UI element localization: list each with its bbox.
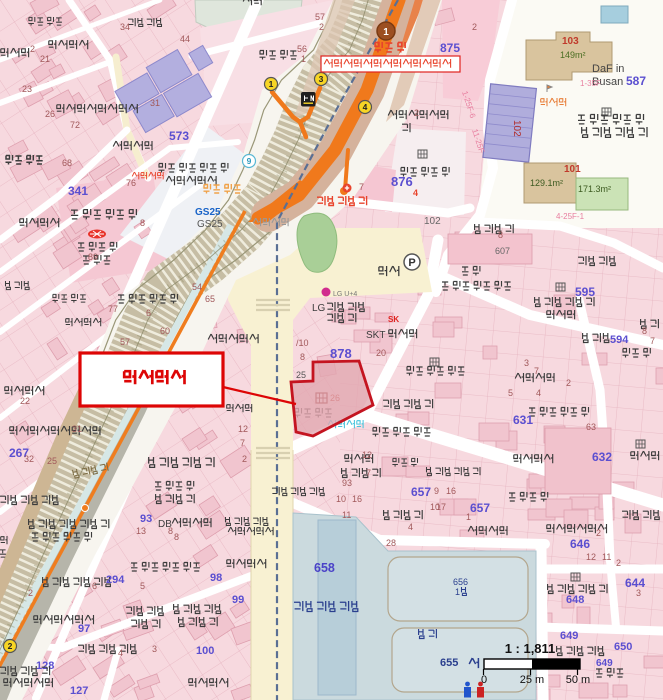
svg-text:657: 657 (470, 501, 490, 515)
svg-text:6: 6 (146, 308, 151, 318)
svg-text:7: 7 (650, 336, 655, 346)
svg-text:DaF in: DaF in (592, 63, 624, 75)
svg-text:77: 77 (108, 304, 118, 314)
svg-text:658: 658 (314, 561, 335, 575)
svg-text:72: 72 (70, 120, 80, 130)
svg-text:1: 1 (301, 54, 306, 64)
svg-text:8: 8 (174, 532, 179, 542)
svg-text:6: 6 (92, 581, 97, 591)
svg-text:3: 3 (319, 74, 324, 84)
svg-text:31: 31 (72, 424, 82, 434)
svg-text:4-25F-1: 4-25F-1 (556, 212, 585, 221)
svg-text:56: 56 (297, 44, 307, 54)
svg-text:171.3m²: 171.3m² (578, 184, 611, 194)
svg-text:4: 4 (413, 188, 418, 198)
svg-text:650: 650 (614, 641, 632, 653)
svg-text:GS25: GS25 (197, 219, 223, 230)
svg-text:656: 656 (453, 577, 468, 587)
svg-text:63: 63 (586, 422, 596, 432)
svg-text:65: 65 (205, 294, 215, 304)
svg-text:8: 8 (300, 352, 305, 362)
svg-text:2: 2 (596, 528, 601, 538)
svg-text:2: 2 (414, 108, 419, 118)
svg-text:26: 26 (45, 109, 55, 119)
svg-text:149m²: 149m² (560, 50, 586, 60)
svg-text:76: 76 (126, 178, 136, 188)
svg-text:5: 5 (508, 388, 513, 398)
svg-text:31: 31 (150, 98, 160, 108)
svg-text:127: 127 (70, 685, 88, 697)
svg-text:875: 875 (440, 41, 460, 55)
svg-text:GS25: GS25 (195, 207, 221, 218)
svg-text:128: 128 (36, 660, 54, 672)
svg-text:68: 68 (62, 158, 72, 168)
svg-text:878: 878 (330, 346, 352, 361)
svg-text:/10: /10 (296, 338, 309, 348)
svg-text:LG: LG (312, 303, 326, 314)
svg-text:607: 607 (495, 246, 510, 256)
svg-text:16: 16 (352, 494, 362, 504)
svg-text:649: 649 (560, 630, 578, 642)
svg-text:2: 2 (28, 588, 33, 598)
svg-text:103: 103 (562, 36, 579, 47)
svg-text:2: 2 (616, 558, 621, 568)
svg-text:595: 595 (575, 285, 595, 299)
svg-text:657: 657 (411, 485, 431, 499)
svg-text:341: 341 (68, 184, 88, 198)
svg-text:89: 89 (88, 252, 98, 262)
svg-text:594: 594 (610, 334, 629, 346)
svg-text:22: 22 (20, 396, 30, 406)
svg-text:P: P (408, 257, 415, 269)
svg-text:8: 8 (168, 526, 173, 536)
svg-text:12: 12 (362, 450, 372, 460)
svg-text:98: 98 (210, 572, 222, 584)
svg-text:10: 10 (336, 494, 346, 504)
svg-text:2: 2 (472, 22, 477, 32)
svg-text:SK: SK (388, 315, 399, 324)
svg-text:2: 2 (8, 641, 13, 651)
svg-text:23: 23 (22, 84, 32, 94)
svg-text:57: 57 (120, 337, 130, 347)
svg-text:632: 632 (592, 450, 612, 464)
svg-text:1: 1 (466, 512, 471, 522)
svg-text:8: 8 (140, 218, 145, 228)
svg-text:34: 34 (120, 22, 130, 32)
svg-text:2: 2 (30, 44, 35, 54)
svg-text:12: 12 (586, 552, 596, 562)
svg-text:20: 20 (376, 348, 386, 358)
svg-text:102: 102 (424, 216, 441, 227)
svg-text:102: 102 (511, 120, 522, 137)
svg-text:57: 57 (315, 12, 325, 22)
svg-text:97: 97 (78, 623, 90, 635)
svg-text:648: 648 (566, 594, 584, 606)
svg-text:93: 93 (140, 513, 152, 525)
svg-text:13: 13 (136, 526, 146, 536)
svg-text:573: 573 (169, 129, 189, 143)
svg-text:25: 25 (47, 456, 57, 466)
svg-text:631: 631 (513, 413, 533, 427)
svg-text:21: 21 (40, 54, 50, 64)
svg-text:2: 2 (242, 454, 247, 464)
svg-text:8: 8 (498, 230, 503, 240)
svg-text:8: 8 (642, 326, 647, 336)
svg-text:7: 7 (366, 468, 371, 478)
svg-text:587: 587 (626, 74, 646, 88)
svg-text:3: 3 (636, 588, 641, 598)
svg-text:4: 4 (536, 388, 541, 398)
svg-text:2: 2 (566, 378, 571, 388)
svg-text:3: 3 (524, 358, 529, 368)
svg-text:1: 1 (269, 79, 274, 89)
svg-text:LG U+4: LG U+4 (333, 291, 357, 298)
svg-text:4: 4 (363, 102, 368, 112)
svg-text:50 m: 50 m (566, 674, 590, 686)
svg-text:129.1m²: 129.1m² (530, 178, 563, 188)
svg-text:11: 11 (342, 510, 351, 520)
svg-text:7: 7 (534, 366, 539, 376)
svg-text:7: 7 (359, 182, 364, 192)
svg-text:3: 3 (152, 644, 157, 654)
svg-text:10: 10 (430, 502, 440, 512)
svg-text:25: 25 (296, 370, 306, 380)
svg-text:1 : 1,811: 1 : 1,811 (505, 641, 556, 656)
svg-text:60: 60 (160, 326, 170, 336)
svg-text:1: 1 (455, 587, 460, 597)
svg-text:2: 2 (319, 22, 324, 32)
svg-text:100: 100 (196, 645, 214, 657)
svg-text:12: 12 (238, 424, 248, 434)
svg-text:44: 44 (180, 34, 190, 44)
svg-text:11: 11 (602, 552, 611, 562)
svg-text:25 m: 25 m (520, 674, 544, 686)
svg-text:4: 4 (408, 522, 413, 532)
svg-text:1-35F: 1-35F (580, 79, 601, 88)
svg-text:93: 93 (342, 478, 352, 488)
svg-text:876: 876 (391, 174, 413, 189)
svg-text:7: 7 (240, 438, 245, 448)
svg-text:SKT: SKT (366, 330, 385, 341)
svg-text:4: 4 (118, 648, 123, 658)
svg-text:28: 28 (386, 538, 396, 548)
svg-text:101: 101 (564, 164, 581, 175)
svg-text:294: 294 (106, 574, 125, 586)
svg-text:54: 54 (192, 282, 202, 292)
svg-text:655: 655 (440, 657, 458, 669)
svg-text:9: 9 (247, 156, 252, 166)
svg-text:99: 99 (232, 594, 244, 606)
svg-text:16: 16 (446, 486, 456, 496)
svg-text:649: 649 (596, 658, 613, 669)
svg-text:32: 32 (24, 454, 34, 464)
svg-text:646: 646 (570, 537, 590, 551)
svg-text:1: 1 (383, 27, 389, 38)
svg-text:5: 5 (140, 581, 145, 591)
svg-text:9: 9 (434, 486, 439, 496)
